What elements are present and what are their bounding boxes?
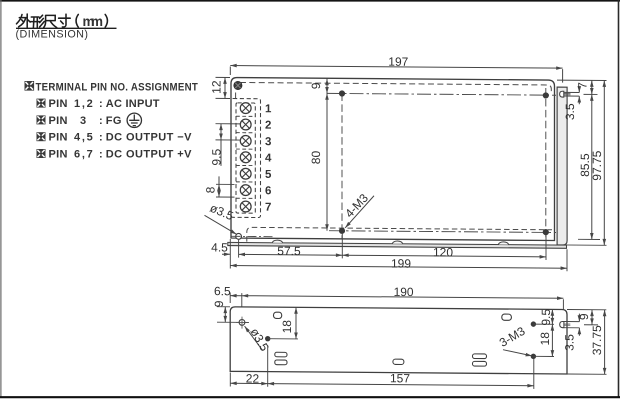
svg-text:(DIMENSION): (DIMENSION) (16, 29, 89, 41)
svg-text:TERMINAL PIN NO. ASSIGNMENT: TERMINAL PIN NO. ASSIGNMENT (36, 82, 199, 94)
svg-text:7: 7 (265, 202, 271, 214)
svg-text::: : (99, 148, 103, 160)
svg-text:3: 3 (265, 136, 271, 148)
svg-text:8: 8 (204, 186, 218, 193)
svg-text:3.5: 3.5 (563, 334, 577, 351)
svg-text:PIN: PIN (49, 98, 68, 110)
svg-text:18: 18 (538, 332, 552, 346)
svg-text:80: 80 (309, 150, 323, 164)
svg-text:DC OUTPUT +V: DC OUTPUT +V (106, 148, 192, 160)
svg-text:120: 120 (433, 245, 453, 259)
svg-text:9.5: 9.5 (209, 148, 223, 165)
svg-text:PIN: PIN (49, 115, 68, 127)
svg-text:FG: FG (106, 115, 122, 127)
svg-text:6,7: 6,7 (74, 148, 93, 160)
svg-text:57.5: 57.5 (277, 244, 301, 258)
svg-text:12: 12 (209, 80, 223, 94)
svg-text::: : (99, 115, 103, 127)
svg-text:9: 9 (212, 300, 226, 307)
svg-text:mm: mm (83, 14, 104, 29)
svg-text:9: 9 (309, 82, 323, 89)
svg-text:3: 3 (80, 115, 86, 127)
svg-text:197: 197 (388, 55, 408, 69)
svg-text:4.5: 4.5 (211, 240, 228, 254)
svg-text:PIN: PIN (49, 148, 68, 160)
svg-text:6.5: 6.5 (214, 284, 231, 298)
svg-text:DC OUTPUT −V: DC OUTPUT −V (106, 132, 192, 144)
svg-text:37.75: 37.75 (590, 325, 604, 355)
svg-text:5: 5 (265, 169, 272, 181)
svg-text:AC INPUT: AC INPUT (106, 98, 160, 110)
svg-text:1: 1 (265, 103, 272, 115)
svg-text:PIN: PIN (49, 132, 68, 144)
svg-text:190: 190 (394, 285, 414, 299)
svg-text:18: 18 (280, 320, 294, 334)
svg-text:2: 2 (265, 120, 271, 132)
svg-text:199: 199 (391, 256, 411, 270)
svg-text:6: 6 (265, 185, 271, 197)
svg-text:4: 4 (265, 152, 272, 164)
svg-text:9: 9 (577, 313, 591, 320)
svg-text:22: 22 (246, 372, 260, 386)
svg-text:4,5: 4,5 (74, 132, 93, 144)
svg-text:1,2: 1,2 (74, 98, 93, 110)
svg-text:157: 157 (390, 371, 410, 385)
svg-text:7: 7 (576, 82, 590, 89)
svg-text::: : (99, 98, 103, 110)
svg-text::: : (99, 132, 103, 144)
svg-text:9.5: 9.5 (539, 309, 553, 326)
svg-text:97.75: 97.75 (590, 150, 604, 180)
svg-text:3.5: 3.5 (563, 103, 577, 120)
